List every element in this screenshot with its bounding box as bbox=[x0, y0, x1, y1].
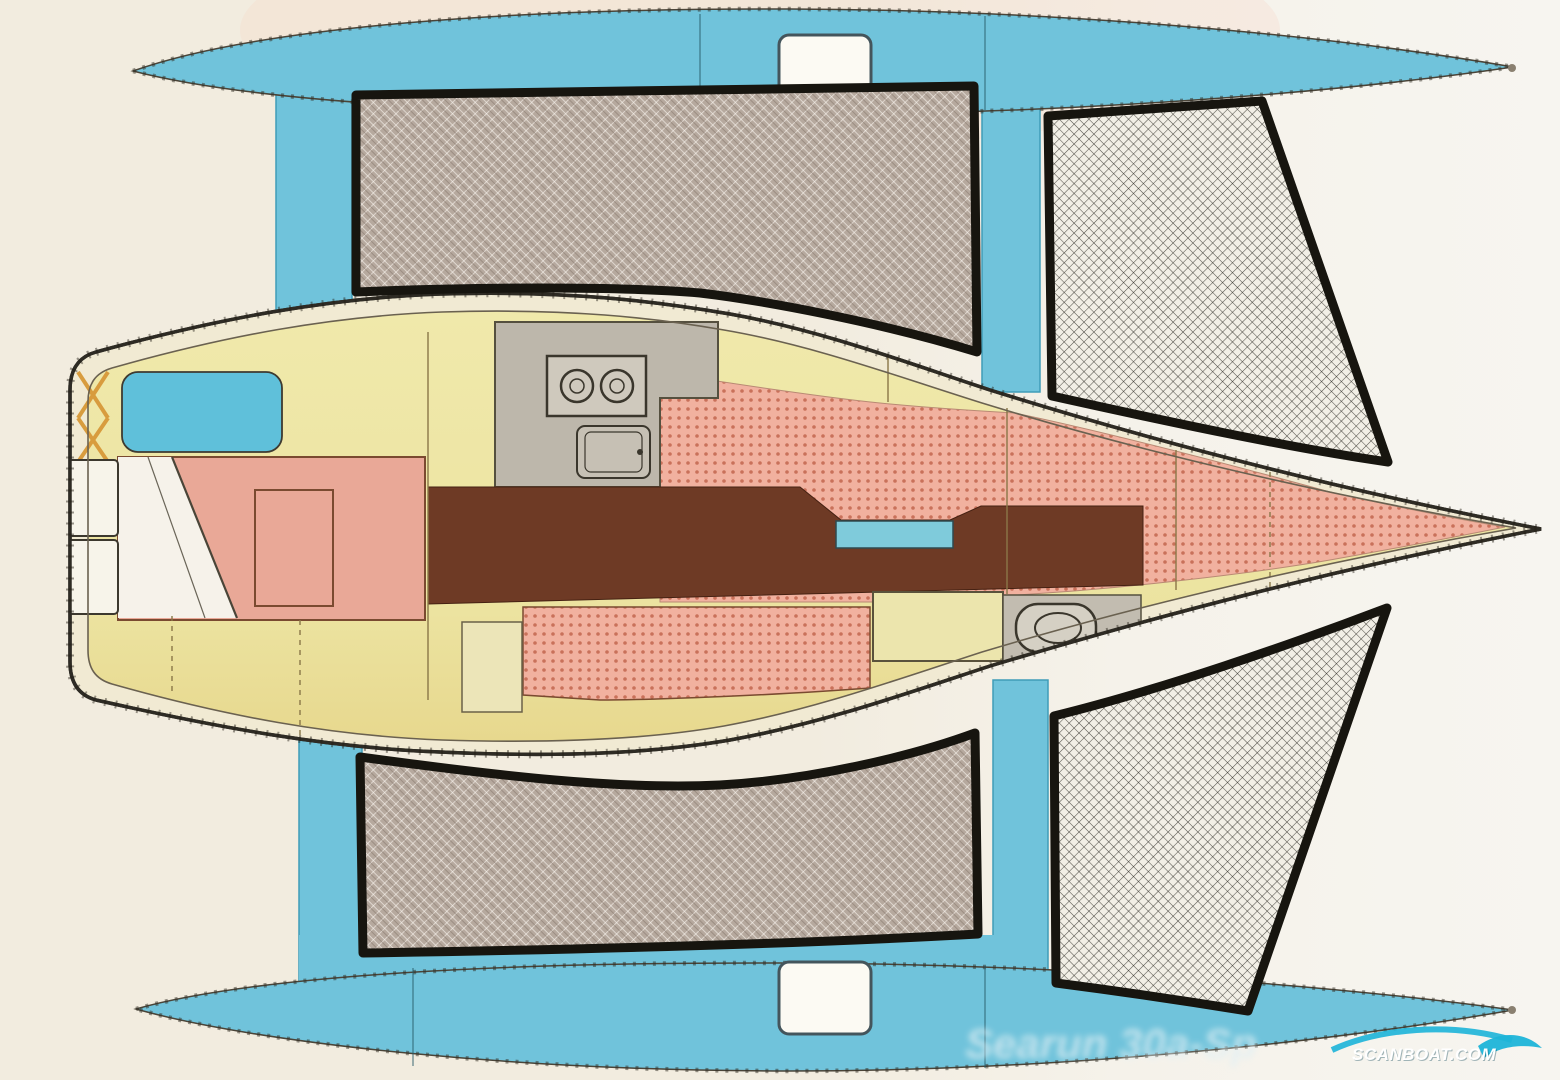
site-text: SCANBOAT.COM bbox=[1352, 1045, 1497, 1064]
trimaran-floor-plan: Searun 30a-Sp SCANBOAT.COM SCANBOAT.COM bbox=[0, 0, 1560, 1080]
net-aft-stbd bbox=[1054, 608, 1387, 1011]
pillow bbox=[66, 540, 118, 614]
pillow bbox=[66, 460, 118, 536]
companionway-step bbox=[836, 521, 953, 548]
float-bow-fitting bbox=[1508, 1006, 1516, 1014]
crossbeam-aft-stbd bbox=[993, 680, 1048, 1015]
float-bow-fitting bbox=[1508, 64, 1516, 72]
aft-hatch-seat bbox=[122, 372, 282, 452]
svg-text:Searun 30a-Sp: Searun 30a-Sp bbox=[965, 1020, 1257, 1067]
settee-berth-stbd bbox=[523, 607, 870, 700]
deck-locker bbox=[462, 622, 522, 712]
faint-watermark-text: Searun 30a-Sp bbox=[965, 1020, 1257, 1067]
net-fore-stbd bbox=[360, 733, 978, 953]
faucet bbox=[637, 449, 643, 455]
starboard-float bbox=[136, 962, 1516, 1071]
float-hatch bbox=[779, 962, 871, 1034]
net-aft-port bbox=[1048, 101, 1388, 462]
locker bbox=[873, 592, 1003, 661]
scanboat-watermark: SCANBOAT.COM SCANBOAT.COM bbox=[1332, 1029, 1542, 1065]
